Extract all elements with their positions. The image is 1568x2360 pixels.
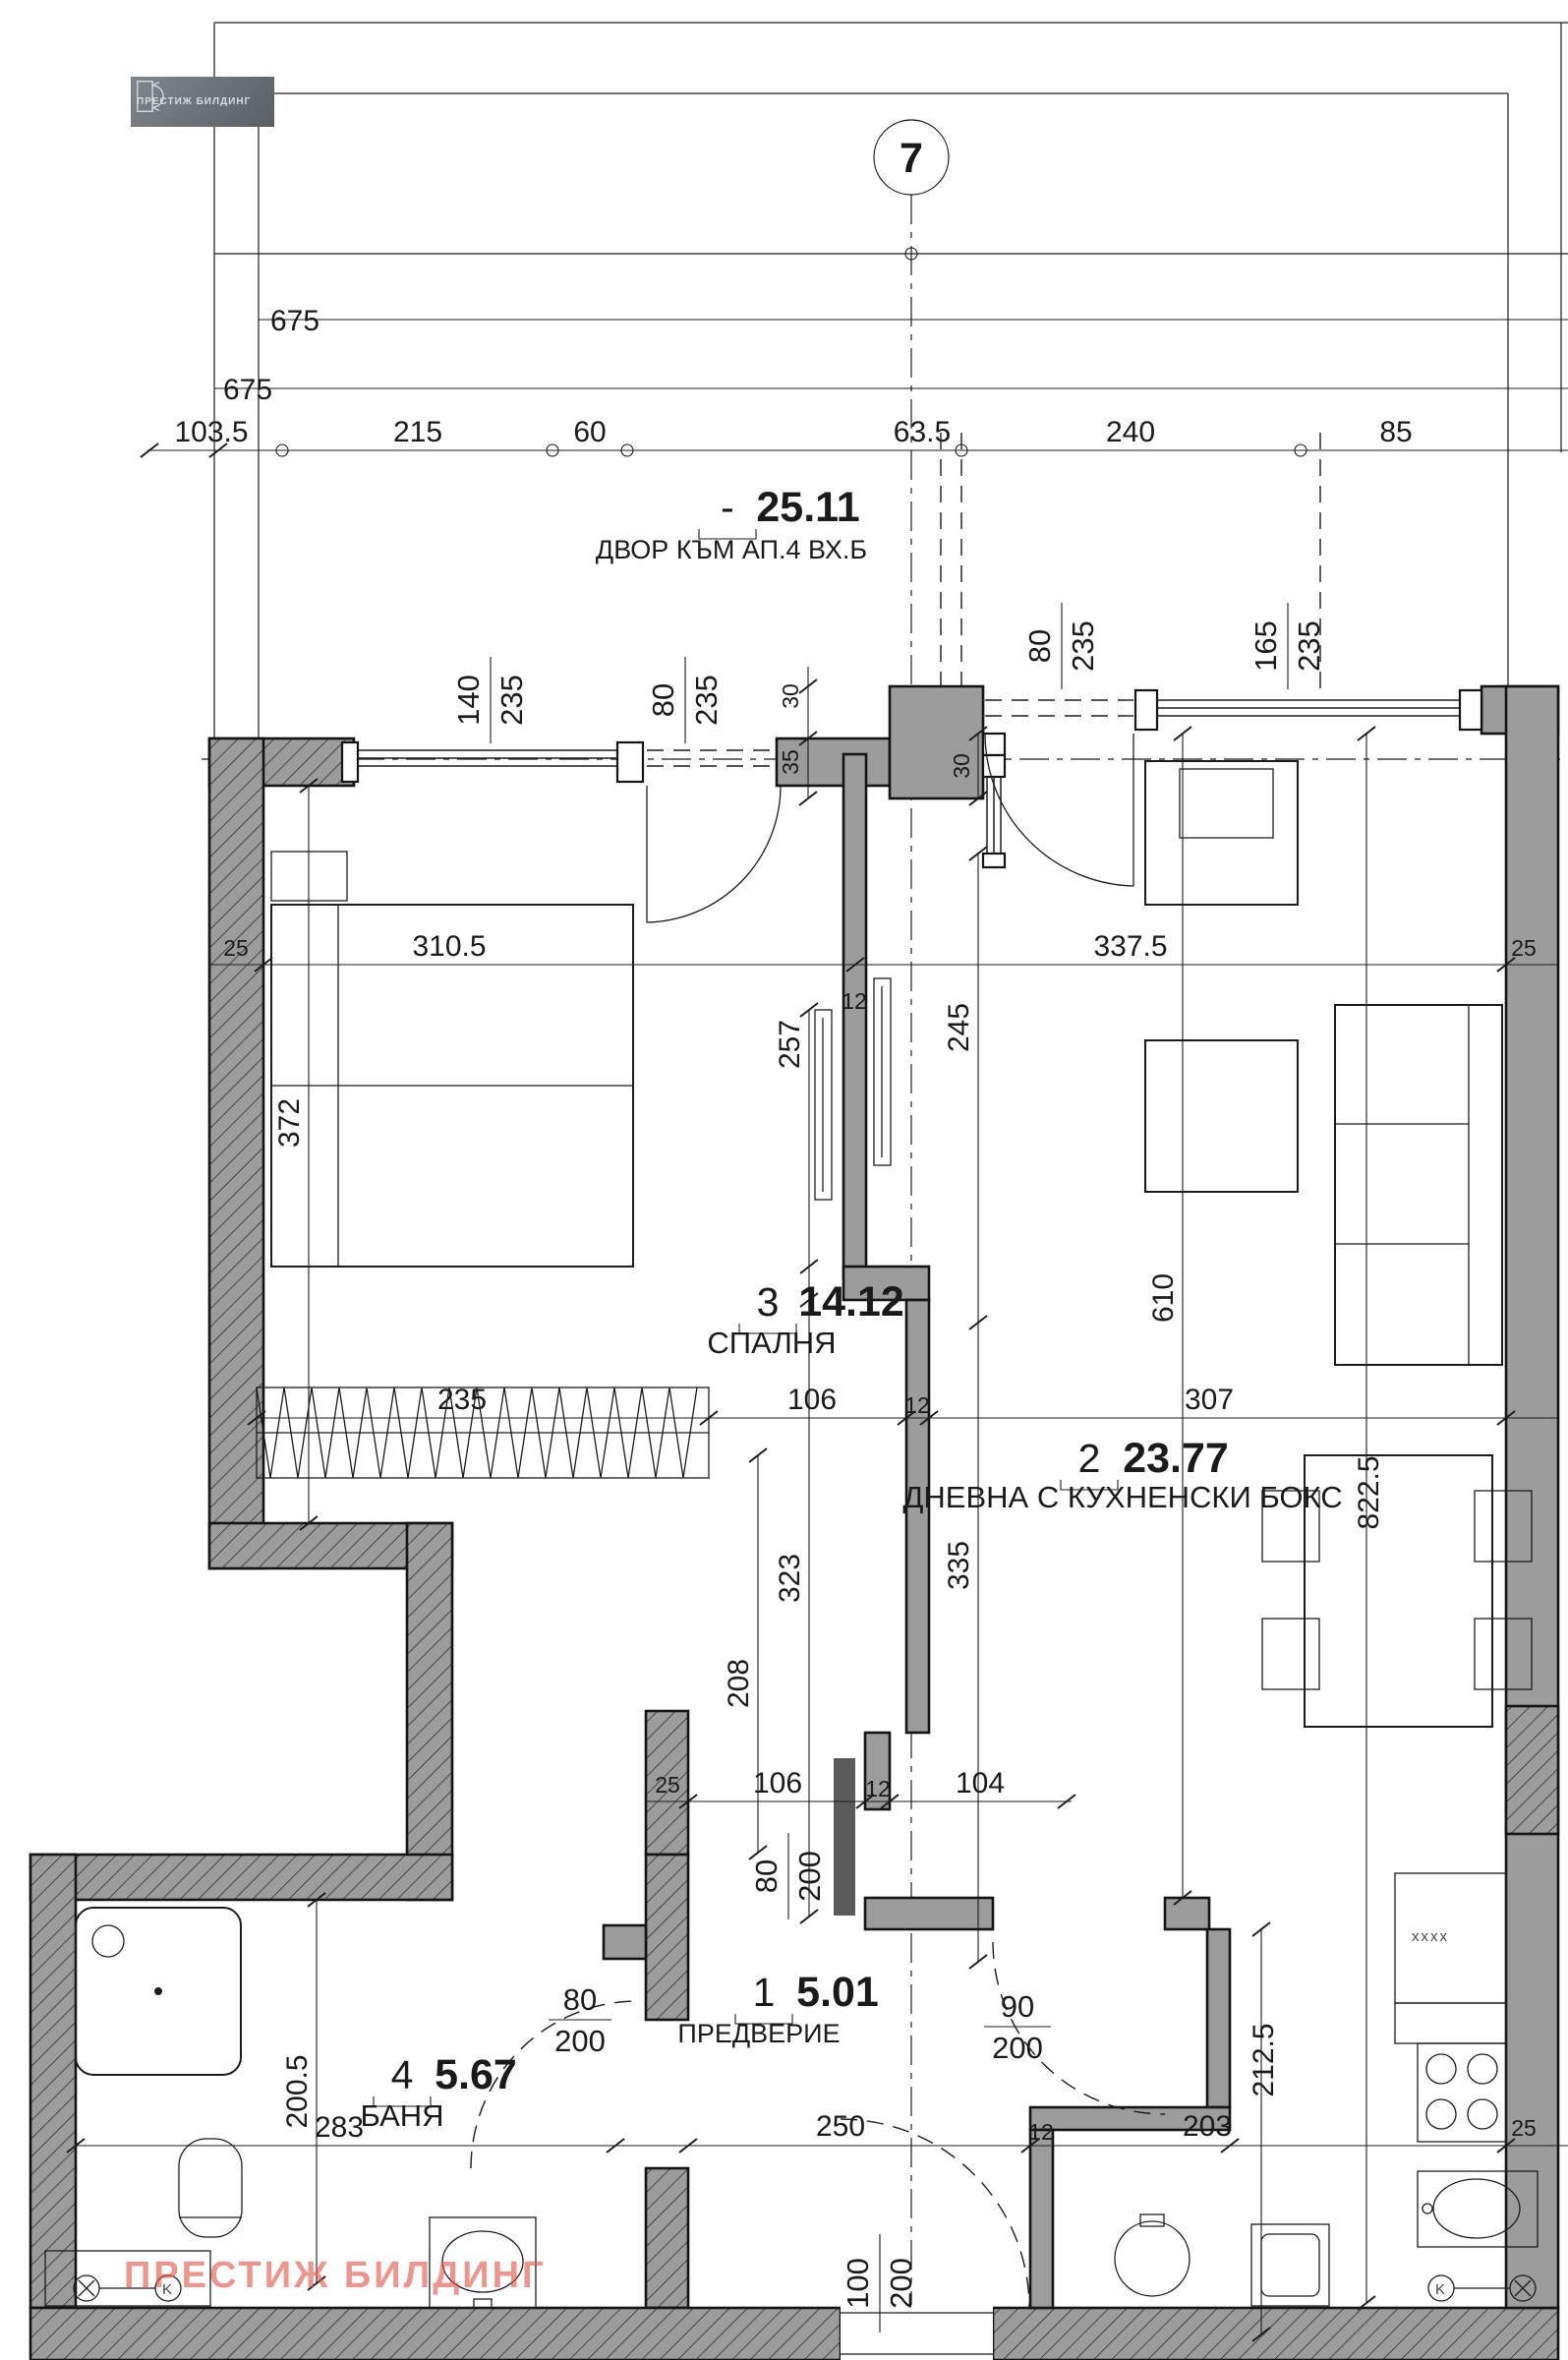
dim-283: 283	[315, 2111, 364, 2144]
wall-bath-right-upper	[646, 1855, 688, 2020]
coffee-table	[1145, 1040, 1298, 1192]
svg-text:140: 140	[451, 675, 486, 726]
k-symbol-label-2: K	[1435, 2281, 1447, 2298]
dim-12-top: 12	[842, 988, 867, 1014]
room-label-living: 2 23.77 ДНЕВНА С КУХНЕНСКИ БОКС	[902, 1435, 1342, 1514]
living-window-jamb-left	[1135, 690, 1157, 730]
living-int-door-arc	[993, 1942, 1165, 2114]
dim-245: 245	[943, 1003, 975, 1052]
svg-text:90: 90	[1001, 1989, 1034, 2024]
dim-208: 208	[723, 1659, 755, 1708]
svg-text:165: 165	[1249, 620, 1283, 672]
tv-unit	[1145, 761, 1298, 905]
stove	[1418, 2043, 1506, 2142]
dim-307: 307	[1185, 1384, 1234, 1416]
wall-bath-top	[30, 1855, 452, 1900]
room-label-bath: 4 5.67 БАНЯ	[360, 2051, 516, 2133]
dim-822-5: 822.5	[1353, 1455, 1385, 1529]
svg-text:235: 235	[1066, 620, 1100, 672]
svg-text:ПРЕДВЕРИЕ: ПРЕДВЕРИЕ	[677, 2019, 840, 2048]
dim-12-kitchen: 12	[1028, 2119, 1054, 2145]
wall-bath-left	[30, 1855, 76, 2308]
niche-fixtures	[1115, 2214, 1329, 2306]
dim-310-5: 310.5	[412, 930, 486, 963]
dim-25-hall: 25	[655, 1772, 680, 1798]
living-door-arc	[985, 734, 1133, 886]
svg-text:80: 80	[1022, 629, 1057, 663]
dim-675-upper: 675	[270, 305, 319, 337]
bedroom-door-arc	[647, 786, 781, 922]
svg-text:200: 200	[554, 2024, 606, 2058]
wall-hall-living-thin	[906, 1300, 929, 1733]
wall-niche-right	[1207, 1929, 1230, 2107]
bedroom-window	[358, 750, 617, 766]
dim-235: 235	[437, 1384, 487, 1416]
wall-niche-left	[1030, 2130, 1053, 2308]
wall-left-exterior	[209, 738, 263, 1568]
dim-35: 35	[778, 749, 803, 775]
living-int-door-size: 90 200	[984, 1989, 1051, 2065]
dim-106-mid: 106	[787, 1384, 837, 1416]
dim-337-5: 337.5	[1093, 930, 1167, 963]
door-swings	[471, 734, 1165, 2308]
bedroom-door-size: 80 235	[646, 657, 724, 743]
wall-top-step-block	[890, 686, 983, 798]
corner-window-block-b	[983, 755, 1005, 777]
logo-door-icon	[131, 77, 164, 116]
wall-bath-door-jamb	[604, 1925, 646, 1959]
living-window-size: 165 235	[1249, 603, 1326, 689]
svg-text:235: 235	[689, 675, 724, 726]
wall-living-door-jamb	[1165, 1898, 1209, 1929]
svg-text:3: 3	[757, 1279, 780, 1325]
wall-bedroom-hall-thin	[843, 754, 866, 1278]
hall-sliding-door-panel	[834, 1758, 855, 1916]
dim-25-kitchen: 25	[1511, 2115, 1537, 2141]
svg-text:23.77: 23.77	[1123, 1435, 1229, 1482]
dim-257: 257	[774, 1020, 806, 1069]
kitchen-mark-label: xxxx	[1412, 1928, 1449, 1945]
dim-85: 85	[1379, 416, 1412, 448]
dim-323: 323	[774, 1554, 806, 1603]
wall-bath-right-lower	[646, 2168, 688, 2308]
bath-door-size: 80 200	[549, 1982, 611, 2058]
wall-right-hatched-patch	[1506, 1706, 1558, 1834]
svg-text:25.11: 25.11	[756, 484, 859, 531]
dim-675-lower: 675	[223, 374, 272, 406]
living-window-jamb-right	[1460, 690, 1481, 730]
bedroom-window-size: 140 235	[451, 657, 529, 743]
living-window	[1157, 700, 1460, 716]
dim-106-hall: 106	[753, 1767, 802, 1799]
walls	[30, 686, 1558, 2360]
svg-text:5.01: 5.01	[796, 1969, 879, 2016]
dim-wall-25-left: 25	[223, 935, 249, 961]
svg-text:200: 200	[884, 2258, 918, 2309]
bedroom-window-jamb-right	[617, 742, 643, 782]
svg-text:БАНЯ: БАНЯ	[360, 2098, 443, 2133]
svg-text:200: 200	[792, 1851, 827, 1902]
dim-335: 335	[943, 1541, 975, 1590]
room-label-bedroom: 3 14.12 СПАЛНЯ	[707, 1278, 903, 1360]
dim-240: 240	[1106, 416, 1155, 448]
axis-marker-label: 7	[900, 135, 923, 182]
yard-boundary	[214, 23, 1568, 738]
bedroom-window-jamb-left	[342, 742, 358, 782]
dim-60: 60	[573, 416, 606, 448]
svg-text:100: 100	[841, 2258, 875, 2309]
company-logo: ПРЕСТИЖ БИЛДИНГ	[131, 77, 274, 127]
dim-610: 610	[1147, 1273, 1180, 1323]
svg-text:80: 80	[749, 1859, 784, 1893]
dim-103-5: 103.5	[174, 416, 248, 448]
svg-text:-: -	[721, 485, 734, 530]
svg-text:200: 200	[992, 2031, 1043, 2065]
svg-text:СПАЛНЯ: СПАЛНЯ	[707, 1326, 836, 1360]
svg-text:4: 4	[391, 2052, 414, 2097]
floorplan-drawing: 7	[0, 0, 1568, 2360]
svg-text:1: 1	[753, 1970, 776, 2015]
svg-text:80: 80	[646, 683, 680, 717]
sofa	[1335, 1005, 1502, 1365]
washing-machine	[1251, 2224, 1329, 2306]
dim-200-5: 200.5	[281, 2054, 314, 2128]
svg-text:235: 235	[1292, 620, 1326, 672]
shower-tray	[76, 1908, 241, 2075]
toilet	[179, 2139, 242, 2237]
room-label-hall: 1 5.01 ПРЕДВЕРИЕ	[677, 1969, 878, 2048]
room-label-yard: - 25.11 ДВОР КЪМ АП.4 ВХ.Б	[596, 484, 867, 564]
svg-text:ДВОР КЪМ АП.4 ВХ.Б: ДВОР КЪМ АП.4 ВХ.Б	[596, 535, 867, 564]
dim-250: 250	[816, 2110, 865, 2143]
wall-bottom-left	[30, 2308, 841, 2360]
bedroom-yard-door-opening	[647, 750, 775, 766]
round-fixture	[1115, 2221, 1190, 2296]
dim-212-5: 212.5	[1248, 2023, 1280, 2096]
entrance-opening	[841, 2305, 993, 2360]
dim-215: 215	[393, 416, 442, 448]
axis-marker-7: 7	[874, 120, 949, 195]
dim-372: 372	[273, 1098, 306, 1148]
wall-hall-living-horizontal	[865, 1898, 993, 1929]
watermark-text: ПРЕСТИЖ БИЛДИНГ	[124, 2255, 547, 2297]
wall-mid-vertical	[407, 1523, 452, 1900]
wall-bottom-right	[993, 2308, 1558, 2360]
dim-104: 104	[956, 1767, 1005, 1799]
hall-slide-door-size: 80 200	[749, 1833, 827, 1919]
dim-63-5: 63.5	[894, 416, 951, 448]
svg-text:5.67: 5.67	[435, 2051, 517, 2098]
living-yard-door-opening	[985, 700, 1133, 716]
dim-30-b: 30	[949, 753, 974, 779]
dim-12-hall: 12	[865, 1776, 891, 1801]
floorplan-page: 7	[0, 0, 1568, 2360]
svg-text:14.12: 14.12	[798, 1278, 904, 1326]
svg-text:235: 235	[494, 675, 529, 726]
svg-text:ДНЕВНА С КУХНЕНСКИ БОКС: ДНЕВНА С КУХНЕНСКИ БОКС	[902, 1480, 1342, 1514]
dim-12-mid: 12	[904, 1392, 930, 1418]
living-door-size: 80 235	[1022, 603, 1100, 689]
dim-wall-25-right: 25	[1511, 935, 1537, 961]
dim-30-a: 30	[778, 683, 803, 709]
svg-text:2: 2	[1078, 1436, 1101, 1481]
corner-window-strip	[983, 777, 1005, 867]
dim-203: 203	[1183, 2110, 1232, 2143]
svg-text:80: 80	[563, 1982, 597, 2017]
